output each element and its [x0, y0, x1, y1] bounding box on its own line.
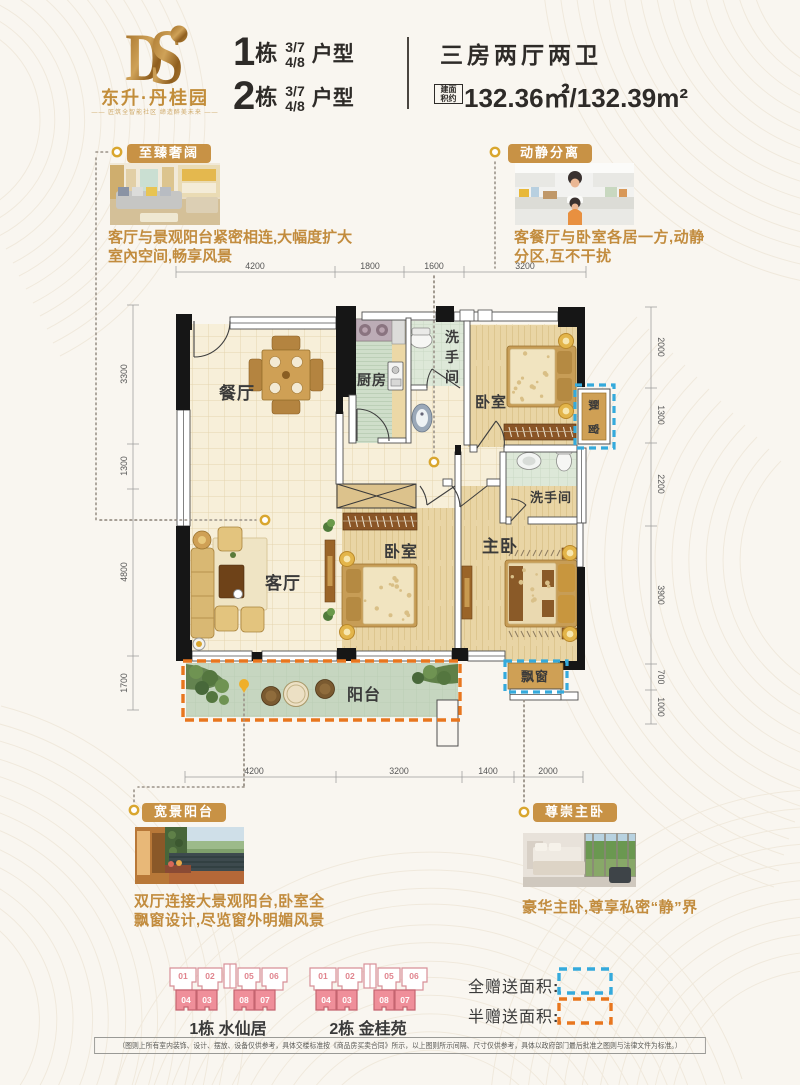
svg-text:洗手间: 洗手间 — [445, 329, 459, 385]
svg-text:06: 06 — [269, 971, 279, 981]
svg-text:3200: 3200 — [389, 766, 409, 776]
svg-text:客厅: 客厅 — [264, 573, 301, 593]
svg-text:08: 08 — [239, 995, 249, 1005]
svg-text:1700: 1700 — [119, 673, 129, 693]
svg-text:03: 03 — [202, 995, 212, 1005]
svg-text:07: 07 — [260, 995, 270, 1005]
svg-text:1600: 1600 — [424, 261, 444, 271]
svg-text:04: 04 — [321, 995, 331, 1005]
svg-text:2200: 2200 — [656, 474, 666, 494]
svg-text:3300: 3300 — [119, 364, 129, 384]
svg-text:4200: 4200 — [244, 766, 264, 776]
svg-text:洗手间: 洗手间 — [530, 490, 572, 505]
svg-text:1400: 1400 — [478, 766, 498, 776]
svg-text:07: 07 — [400, 995, 410, 1005]
svg-text:2000: 2000 — [538, 766, 558, 776]
svg-text:飘: 飘 — [587, 400, 600, 411]
svg-text:卧室: 卧室 — [475, 393, 507, 411]
svg-text:3900: 3900 — [656, 585, 666, 605]
svg-text:08: 08 — [379, 995, 389, 1005]
svg-text:4800: 4800 — [119, 562, 129, 582]
svg-text:卧室: 卧室 — [384, 542, 418, 561]
svg-text:700: 700 — [656, 670, 666, 685]
svg-text:05: 05 — [384, 971, 394, 981]
svg-text:1300: 1300 — [119, 456, 129, 476]
svg-text:02: 02 — [345, 971, 355, 981]
svg-text:1300: 1300 — [656, 405, 666, 425]
svg-text:主卧: 主卧 — [482, 536, 518, 556]
svg-text:厨房: 厨房 — [357, 372, 387, 388]
svg-text:02: 02 — [205, 971, 215, 981]
svg-text:06: 06 — [409, 971, 419, 981]
svg-text:01: 01 — [178, 971, 188, 981]
svg-text:04: 04 — [181, 995, 191, 1005]
svg-text:窗: 窗 — [587, 424, 601, 435]
svg-text:飘窗: 飘窗 — [521, 669, 549, 684]
svg-text:餐厅: 餐厅 — [219, 383, 255, 403]
svg-text:2000: 2000 — [656, 337, 666, 357]
svg-text:阳台: 阳台 — [347, 685, 381, 704]
svg-text:01: 01 — [318, 971, 328, 981]
svg-text:1000: 1000 — [656, 697, 666, 717]
svg-text:05: 05 — [244, 971, 254, 981]
svg-text:03: 03 — [342, 995, 352, 1005]
